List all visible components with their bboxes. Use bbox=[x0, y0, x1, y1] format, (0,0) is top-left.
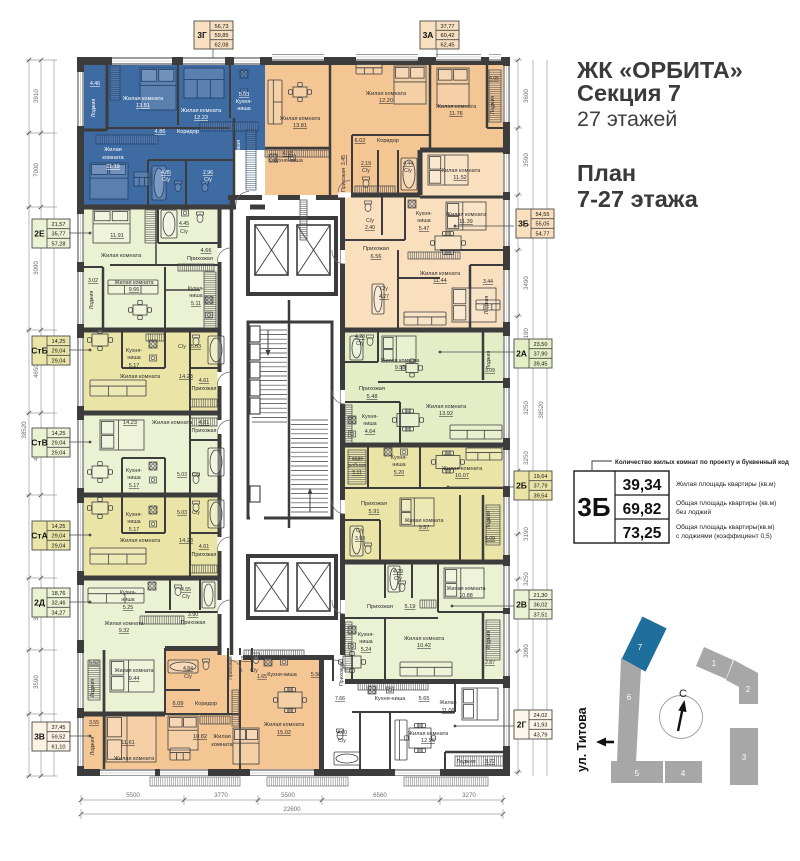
svg-text:5.19: 5.19 bbox=[405, 604, 416, 610]
svg-text:Жилая комната: Жилая комната bbox=[101, 253, 142, 259]
svg-text:3600: 3600 bbox=[523, 89, 530, 103]
svg-text:4.61: 4.61 bbox=[199, 378, 210, 384]
svg-text:Коридор: Коридор bbox=[177, 129, 199, 135]
svg-text:43,79: 43,79 bbox=[534, 732, 548, 738]
svg-text:Общая площадь квартиры (кв.м): Общая площадь квартиры (кв.м) bbox=[676, 499, 776, 507]
svg-text:ниша: ниша bbox=[363, 421, 376, 427]
svg-text:12.96: 12.96 bbox=[421, 738, 435, 744]
svg-text:5.03: 5.03 bbox=[239, 92, 250, 98]
svg-text:32,46: 32,46 bbox=[52, 601, 66, 607]
svg-text:Жилая комната: Жилая комната bbox=[152, 420, 193, 426]
svg-text:Прихожая: Прихожая bbox=[187, 256, 213, 262]
svg-text:4.28: 4.28 bbox=[355, 334, 365, 340]
svg-text:59,85: 59,85 bbox=[215, 33, 229, 39]
svg-text:Жилая комната: Жилая комната bbox=[115, 280, 154, 286]
svg-text:4.64: 4.64 bbox=[365, 429, 376, 435]
svg-text:Жилая комната: Жилая комната bbox=[120, 538, 161, 544]
svg-text:С/у: С/у bbox=[192, 510, 200, 516]
svg-text:Лоджия: Лоджия bbox=[90, 737, 96, 756]
svg-text:9.58: 9.58 bbox=[395, 365, 406, 371]
svg-text:С/у: С/у bbox=[404, 168, 412, 174]
svg-text:10.82: 10.82 bbox=[193, 734, 207, 740]
svg-text:Жилая комната: Жилая комната bbox=[120, 374, 161, 380]
svg-text:29,04: 29,04 bbox=[52, 349, 66, 355]
svg-text:3770: 3770 bbox=[214, 792, 228, 799]
svg-text:5.50: 5.50 bbox=[311, 672, 322, 678]
svg-text:3590: 3590 bbox=[33, 675, 40, 689]
svg-text:11.06: 11.06 bbox=[441, 708, 454, 714]
svg-text:12.23: 12.23 bbox=[194, 115, 208, 121]
svg-text:Кухня-ниша: Кухня-ниша bbox=[273, 158, 303, 164]
svg-text:ниша: ниша bbox=[127, 475, 140, 481]
svg-text:План: План bbox=[577, 160, 636, 186]
svg-text:СтВ: СтВ bbox=[31, 438, 47, 448]
svg-text:14,25: 14,25 bbox=[52, 339, 66, 345]
svg-text:ул. Титова: ул. Титова bbox=[575, 706, 589, 772]
svg-text:С/у: С/у bbox=[162, 177, 170, 183]
svg-text:34,27: 34,27 bbox=[52, 610, 66, 616]
svg-text:Жилая комната: Жилая комната bbox=[181, 108, 222, 114]
svg-text:Коридор: Коридор bbox=[377, 138, 399, 144]
svg-text:5.91: 5.91 bbox=[369, 509, 380, 515]
svg-text:2.19: 2.19 bbox=[361, 161, 371, 167]
svg-text:57,28: 57,28 bbox=[52, 241, 66, 247]
svg-text:2Д: 2Д bbox=[34, 598, 45, 608]
svg-text:3250: 3250 bbox=[523, 451, 530, 465]
svg-text:36,02: 36,02 bbox=[534, 603, 548, 609]
svg-text:5.81: 5.81 bbox=[236, 173, 242, 183]
svg-text:С: С bbox=[679, 688, 687, 700]
svg-text:Кухня-: Кухня- bbox=[416, 211, 432, 217]
svg-text:2.96: 2.96 bbox=[203, 170, 213, 176]
svg-text:5.79: 5.79 bbox=[241, 656, 251, 662]
svg-text:Жилая комната: Жилая комната bbox=[405, 518, 444, 524]
svg-text:Кухня-: Кухня- bbox=[391, 455, 407, 461]
svg-text:21,57: 21,57 bbox=[52, 222, 66, 228]
svg-text:29,04: 29,04 bbox=[52, 450, 66, 456]
svg-text:2А: 2А bbox=[516, 349, 527, 359]
svg-text:ниша: ниша bbox=[127, 355, 140, 361]
svg-text:4.05: 4.05 bbox=[489, 76, 499, 82]
svg-text:Лоджия: Лоджия bbox=[89, 291, 95, 310]
svg-text:Прихожая: Прихожая bbox=[236, 140, 242, 164]
svg-text:37,79: 37,79 bbox=[534, 484, 548, 490]
svg-text:5.03: 5.03 bbox=[177, 510, 187, 516]
svg-text:С/у: С/у bbox=[380, 286, 388, 292]
svg-text:27 этажей: 27 этажей bbox=[577, 107, 677, 131]
svg-text:60,42: 60,42 bbox=[441, 33, 455, 39]
svg-text:7000: 7000 bbox=[33, 163, 40, 177]
svg-text:5: 5 bbox=[635, 769, 640, 778]
svg-text:С/у: С/у bbox=[338, 738, 346, 744]
svg-text:С/у: С/у bbox=[180, 229, 188, 235]
svg-text:Прихожая: Прихожая bbox=[359, 386, 385, 392]
svg-text:С/у: С/у bbox=[192, 472, 200, 478]
svg-text:С/у: С/у bbox=[356, 528, 364, 534]
svg-text:Жилая комната: Жилая комната bbox=[105, 621, 144, 627]
svg-text:Лоджия: Лоджия bbox=[456, 759, 475, 765]
svg-text:Прихожая: Прихожая bbox=[341, 168, 347, 192]
svg-text:38520: 38520 bbox=[21, 421, 28, 439]
svg-text:Прихожая: Прихожая bbox=[192, 386, 217, 392]
svg-text:4.61: 4.61 bbox=[199, 420, 210, 426]
svg-text:2.87: 2.87 bbox=[485, 660, 495, 666]
svg-text:54,55: 54,55 bbox=[536, 212, 550, 218]
svg-text:5.03: 5.03 bbox=[177, 472, 187, 478]
svg-text:41,93: 41,93 bbox=[534, 723, 548, 729]
svg-text:Кухня-: Кухня- bbox=[126, 468, 142, 474]
svg-text:Жилая комната: Жилая комната bbox=[115, 668, 154, 674]
svg-text:С/у: С/у bbox=[366, 218, 374, 224]
svg-text:61,10: 61,10 bbox=[52, 744, 66, 750]
svg-text:37,45: 37,45 bbox=[52, 725, 66, 731]
svg-text:24,02: 24,02 bbox=[534, 713, 548, 719]
svg-text:2Г: 2Г bbox=[517, 720, 527, 730]
svg-text:9.57: 9.57 bbox=[419, 525, 430, 531]
svg-text:37,90: 37,90 bbox=[534, 352, 548, 358]
svg-text:Прихожая: Прихожая bbox=[181, 620, 206, 626]
svg-text:4.29: 4.29 bbox=[393, 569, 403, 575]
svg-text:6.02: 6.02 bbox=[355, 138, 366, 144]
svg-text:5.17: 5.17 bbox=[129, 527, 140, 533]
svg-text:11.76: 11.76 bbox=[449, 111, 463, 117]
svg-text:1.65: 1.65 bbox=[257, 674, 267, 680]
svg-text:4.61: 4.61 bbox=[199, 544, 210, 550]
svg-text:21,30: 21,30 bbox=[534, 593, 548, 599]
svg-text:Гарде-: Гарде- bbox=[349, 456, 365, 462]
svg-text:ниша: ниша bbox=[127, 519, 140, 525]
svg-text:Общая площадь квартиры(кв.м): Общая площадь квартиры(кв.м) bbox=[676, 523, 775, 531]
svg-text:Прихожая: Прихожая bbox=[192, 552, 217, 558]
svg-text:2: 2 bbox=[746, 685, 751, 694]
svg-text:Жилая: Жилая bbox=[439, 700, 456, 706]
svg-text:Жилая комната: Жилая комната bbox=[436, 104, 477, 110]
svg-text:Лоджия: Лоджия bbox=[91, 99, 97, 118]
svg-text:6.55: 6.55 bbox=[283, 151, 294, 157]
svg-text:15.02: 15.02 bbox=[277, 730, 291, 736]
svg-text:5.03: 5.03 bbox=[191, 344, 201, 350]
svg-text:4.45: 4.45 bbox=[179, 221, 189, 227]
svg-text:Жилая комната: Жилая комната bbox=[366, 91, 407, 97]
svg-text:Прихожая: Прихожая bbox=[339, 662, 345, 686]
svg-text:3Б: 3Б bbox=[577, 492, 610, 522]
svg-text:5.17: 5.17 bbox=[129, 483, 140, 489]
svg-text:Лоджия: Лоджия bbox=[486, 351, 492, 370]
svg-text:ниша: ниша bbox=[359, 639, 372, 645]
svg-text:Кухня-: Кухня- bbox=[120, 590, 136, 596]
svg-text:12.20: 12.20 bbox=[379, 98, 393, 104]
svg-text:4.44: 4.44 bbox=[403, 161, 413, 167]
svg-text:29,04: 29,04 bbox=[52, 441, 66, 447]
svg-text:робная: робная bbox=[348, 463, 365, 469]
svg-text:Жилая комната: Жилая комната bbox=[114, 756, 155, 762]
svg-text:62,08: 62,08 bbox=[215, 43, 229, 49]
svg-text:13.92: 13.92 bbox=[439, 411, 453, 417]
svg-text:5.11: 5.11 bbox=[191, 301, 201, 307]
svg-text:10.88: 10.88 bbox=[459, 593, 473, 599]
svg-text:18,76: 18,76 bbox=[52, 591, 66, 597]
svg-text:4.55: 4.55 bbox=[181, 587, 191, 593]
svg-text:11.61: 11.61 bbox=[121, 740, 135, 746]
svg-text:Жилая комната: Жилая комната bbox=[264, 722, 305, 728]
svg-text:10.42: 10.42 bbox=[417, 643, 431, 649]
svg-text:14.23: 14.23 bbox=[179, 538, 193, 544]
svg-text:3090: 3090 bbox=[33, 261, 40, 275]
svg-text:Жилая комната: Жилая комната bbox=[123, 96, 164, 102]
svg-text:29,04: 29,04 bbox=[52, 543, 66, 549]
svg-text:Прихожая: Прихожая bbox=[361, 501, 387, 507]
svg-text:Жилая комната: Жилая комната bbox=[447, 586, 486, 592]
svg-text:11.52: 11.52 bbox=[453, 175, 467, 181]
svg-text:3250: 3250 bbox=[523, 572, 530, 586]
svg-text:СтБ: СтБ bbox=[31, 346, 47, 356]
svg-text:Жилая комната: Жилая комната bbox=[442, 466, 483, 472]
svg-text:35,77: 35,77 bbox=[52, 232, 66, 238]
svg-text:3: 3 bbox=[742, 753, 747, 762]
svg-text:22600: 22600 bbox=[283, 806, 301, 813]
svg-text:Жилая: Жилая bbox=[104, 147, 122, 153]
svg-text:ниша: ниша bbox=[121, 597, 134, 603]
svg-text:Кухня-: Кухня- bbox=[362, 414, 378, 420]
svg-text:Жилая комната: Жилая комната bbox=[426, 404, 467, 410]
svg-text:Прихожая: Прихожая bbox=[228, 656, 234, 679]
svg-text:5.09: 5.09 bbox=[485, 536, 495, 542]
svg-text:62,45: 62,45 bbox=[441, 43, 455, 49]
svg-text:Жилая комната: Жилая комната bbox=[280, 116, 321, 122]
svg-text:5.25: 5.25 bbox=[123, 605, 134, 611]
svg-text:4.85: 4.85 bbox=[161, 170, 171, 176]
svg-text:11.19: 11.19 bbox=[106, 164, 120, 170]
svg-text:11.91: 11.91 bbox=[110, 233, 124, 239]
svg-text:ниша: ниша bbox=[392, 462, 405, 468]
svg-text:19,64: 19,64 bbox=[534, 474, 548, 480]
svg-text:14.23: 14.23 bbox=[179, 374, 193, 380]
svg-text:3Г: 3Г bbox=[197, 30, 207, 40]
svg-text:Лоджия: Лоджия bbox=[486, 631, 492, 650]
svg-text:2.40: 2.40 bbox=[365, 225, 375, 231]
svg-text:3.93: 3.93 bbox=[355, 536, 365, 542]
svg-text:Жилая комната: Жилая комната bbox=[408, 731, 449, 737]
svg-text:3.02: 3.02 bbox=[88, 278, 98, 284]
svg-text:Жилая комната: Жилая комната bbox=[404, 636, 445, 642]
svg-text:С/у: С/у bbox=[356, 341, 364, 347]
svg-text:5.48: 5.48 bbox=[367, 394, 378, 400]
svg-text:14,25: 14,25 bbox=[52, 431, 66, 437]
svg-text:39,54: 39,54 bbox=[534, 493, 548, 499]
svg-text:СтА: СтА bbox=[31, 531, 47, 541]
svg-text:Жилая площадь квартиры (кв.м): Жилая площадь квартиры (кв.м) bbox=[676, 481, 776, 488]
svg-text:Жилая: Жилая bbox=[213, 734, 231, 740]
svg-text:11.44: 11.44 bbox=[433, 278, 447, 284]
svg-text:5.62: 5.62 bbox=[89, 660, 99, 666]
svg-text:37,77: 37,77 bbox=[441, 24, 455, 30]
svg-text:ниша: ниша bbox=[189, 293, 202, 299]
svg-text:с лоджиями (коэффициент 0,5): с лоджиями (коэффициент 0,5) bbox=[676, 533, 772, 540]
svg-text:Кухня-: Кухня- bbox=[126, 348, 142, 354]
svg-text:ниша: ниша bbox=[417, 218, 430, 224]
svg-text:3.44: 3.44 bbox=[483, 279, 493, 285]
svg-text:11.39: 11.39 bbox=[459, 219, 473, 225]
svg-text:3190: 3190 bbox=[523, 527, 530, 541]
svg-text:С/у: С/у bbox=[204, 177, 212, 183]
svg-text:С/у: С/у bbox=[394, 576, 402, 582]
svg-text:9.32: 9.32 bbox=[119, 628, 130, 634]
svg-text:Кухня-: Кухня- bbox=[358, 632, 374, 638]
svg-text:4.27: 4.27 bbox=[379, 294, 389, 300]
svg-text:3270: 3270 bbox=[462, 792, 476, 799]
svg-text:5.20: 5.20 bbox=[394, 470, 405, 476]
svg-text:6.09: 6.09 bbox=[173, 701, 184, 707]
svg-text:39,45: 39,45 bbox=[534, 361, 548, 367]
svg-text:5.47: 5.47 bbox=[419, 226, 430, 232]
svg-text:4.46: 4.46 bbox=[90, 81, 100, 87]
svg-text:3490: 3490 bbox=[523, 276, 530, 290]
svg-text:Лоджия: Лоджия bbox=[90, 679, 96, 698]
svg-text:38520: 38520 bbox=[538, 401, 545, 419]
svg-text:комната: комната bbox=[211, 742, 233, 748]
svg-text:5500: 5500 bbox=[126, 792, 140, 799]
svg-text:Жилая комната: Жилая комната bbox=[381, 358, 420, 364]
svg-text:9.44: 9.44 bbox=[129, 676, 140, 682]
svg-text:9.66: 9.66 bbox=[129, 287, 140, 293]
svg-text:6: 6 bbox=[627, 693, 632, 702]
svg-text:14.23: 14.23 bbox=[123, 420, 137, 426]
svg-text:4: 4 bbox=[681, 769, 686, 778]
svg-text:5.24: 5.24 bbox=[361, 647, 372, 653]
svg-text:С/у: С/у bbox=[182, 594, 190, 600]
svg-text:1: 1 bbox=[712, 659, 717, 668]
svg-text:С/у: С/у bbox=[362, 168, 370, 174]
svg-text:Коридор: Коридор bbox=[195, 701, 217, 707]
svg-text:3910: 3910 bbox=[33, 89, 40, 103]
svg-text:13.51: 13.51 bbox=[136, 103, 150, 109]
svg-text:3.55: 3.55 bbox=[89, 720, 99, 726]
svg-text:ниша: ниша bbox=[237, 106, 250, 112]
svg-text:5.65: 5.65 bbox=[419, 696, 430, 702]
svg-text:3А: 3А bbox=[423, 30, 434, 40]
svg-text:Жилая комната: Жилая комната bbox=[420, 271, 461, 277]
svg-text:без лоджий: без лоджий bbox=[676, 508, 711, 516]
svg-text:4.66: 4.66 bbox=[201, 248, 212, 254]
svg-text:3В: 3В bbox=[34, 732, 45, 742]
svg-text:3.90: 3.90 bbox=[188, 612, 199, 618]
svg-text:Прихожая: Прихожая bbox=[367, 604, 393, 610]
svg-text:3.72: 3.72 bbox=[485, 759, 496, 765]
svg-text:3.09: 3.09 bbox=[485, 368, 495, 374]
svg-text:5500: 5500 bbox=[281, 792, 295, 799]
svg-text:Кухня-ниша: Кухня-ниша bbox=[375, 696, 407, 702]
svg-text:4650: 4650 bbox=[33, 364, 40, 378]
svg-text:7.66: 7.66 bbox=[335, 696, 345, 702]
svg-text:13.81: 13.81 bbox=[293, 123, 307, 129]
svg-text:Прихожая: Прихожая bbox=[192, 428, 217, 434]
svg-text:39,34: 39,34 bbox=[623, 477, 662, 494]
svg-text:Секция 7: Секция 7 bbox=[577, 80, 681, 106]
svg-text:3090: 3090 bbox=[523, 644, 530, 658]
svg-text:Кухня-: Кухня- bbox=[236, 99, 252, 105]
svg-text:Количество жилых комнат по про: Количество жилых комнат по проекту и бук… bbox=[615, 458, 789, 466]
svg-text:Жилая комната: Жилая комната bbox=[446, 212, 487, 218]
svg-text:55,05: 55,05 bbox=[536, 222, 550, 228]
svg-text:Лоджия: Лоджия bbox=[484, 296, 490, 315]
svg-text:С/у: С/у bbox=[178, 344, 186, 350]
svg-text:14,25: 14,25 bbox=[52, 524, 66, 530]
svg-text:Лоджия: Лоджия bbox=[490, 96, 496, 115]
svg-text:23,50: 23,50 bbox=[534, 342, 548, 348]
svg-text:Прихожая: Прихожая bbox=[363, 246, 389, 252]
svg-text:7: 7 bbox=[638, 643, 643, 652]
svg-text:6.56: 6.56 bbox=[371, 254, 382, 260]
svg-text:Лоджия: Лоджия bbox=[486, 511, 492, 530]
svg-text:2Б: 2Б bbox=[516, 481, 527, 491]
svg-text:6560: 6560 bbox=[373, 792, 387, 799]
svg-text:29,04: 29,04 bbox=[52, 534, 66, 540]
svg-text:10.07: 10.07 bbox=[455, 473, 469, 479]
svg-text:69,82: 69,82 bbox=[623, 501, 662, 518]
svg-text:37,51: 37,51 bbox=[534, 612, 548, 618]
svg-text:3590: 3590 bbox=[523, 153, 530, 167]
svg-text:7-27 этажа: 7-27 этажа bbox=[577, 186, 699, 212]
svg-text:Кухня-: Кухня- bbox=[188, 286, 204, 292]
svg-text:комната: комната bbox=[102, 155, 124, 161]
svg-text:5.17: 5.17 bbox=[129, 363, 140, 369]
svg-text:4.86: 4.86 bbox=[155, 129, 166, 135]
svg-text:4.84: 4.84 bbox=[183, 666, 193, 672]
svg-text:Жилая комната: Жилая комната bbox=[440, 168, 481, 174]
svg-text:56,73: 56,73 bbox=[215, 24, 229, 30]
svg-text:3.45: 3.45 bbox=[341, 155, 347, 165]
svg-text:3.11: 3.11 bbox=[352, 470, 362, 476]
svg-text:2Е: 2Е bbox=[34, 229, 45, 239]
svg-text:3Б: 3Б bbox=[518, 219, 529, 229]
svg-text:Кухня-ниша: Кухня-ниша bbox=[267, 672, 297, 678]
svg-text:59,52: 59,52 bbox=[52, 735, 66, 741]
svg-text:4.60: 4.60 bbox=[337, 730, 347, 736]
svg-text:2В: 2В bbox=[516, 600, 527, 610]
svg-text:54,77: 54,77 bbox=[536, 231, 550, 237]
svg-text:С/у: С/у bbox=[184, 674, 192, 680]
svg-text:Кухня-: Кухня- bbox=[126, 512, 142, 518]
svg-text:73,25: 73,25 bbox=[623, 525, 662, 542]
svg-text:29,04: 29,04 bbox=[52, 358, 66, 364]
svg-text:3250: 3250 bbox=[523, 401, 530, 415]
